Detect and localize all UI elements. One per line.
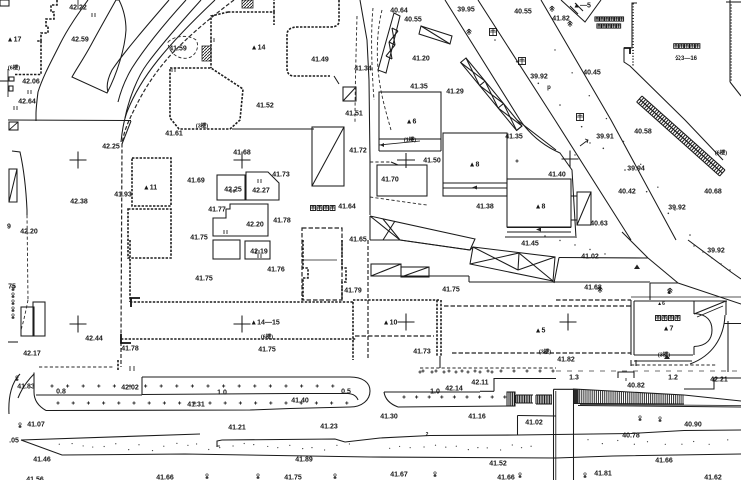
svg-text:1.0: 1.0 bbox=[430, 389, 440, 396]
svg-text:42.14: 42.14 bbox=[445, 386, 463, 393]
svg-text:40.58: 40.58 bbox=[634, 129, 652, 136]
svg-text:▲11: ▲11 bbox=[143, 185, 157, 192]
svg-text:42.22: 42.22 bbox=[69, 5, 87, 12]
svg-text:40.64: 40.64 bbox=[390, 8, 408, 15]
svg-text:41.50: 41.50 bbox=[423, 158, 441, 165]
svg-text:41.40: 41.40 bbox=[548, 172, 566, 179]
svg-text:75: 75 bbox=[8, 284, 16, 291]
svg-text:(6楼): (6楼) bbox=[8, 64, 20, 72]
svg-text:41.77: 41.77 bbox=[208, 207, 226, 214]
svg-text:41.82: 41.82 bbox=[552, 16, 570, 23]
svg-text:41.82: 41.82 bbox=[557, 357, 575, 364]
svg-text:41.16: 41.16 bbox=[468, 414, 486, 421]
svg-text:41.52: 41.52 bbox=[489, 461, 507, 468]
svg-text:▲14: ▲14 bbox=[251, 45, 266, 52]
svg-text:1.3: 1.3 bbox=[569, 375, 579, 382]
svg-text:0.5: 0.5 bbox=[341, 389, 351, 396]
svg-text:39.91: 39.91 bbox=[596, 134, 614, 141]
svg-text:41.51: 41.51 bbox=[345, 111, 363, 118]
svg-text:41.59: 41.59 bbox=[169, 46, 187, 53]
svg-text:40.45: 40.45 bbox=[583, 70, 601, 77]
svg-text:(3楼): (3楼) bbox=[196, 122, 208, 130]
svg-text:1.0: 1.0 bbox=[217, 390, 227, 397]
svg-text:41.07: 41.07 bbox=[27, 422, 45, 429]
svg-text:1.2: 1.2 bbox=[668, 375, 678, 382]
svg-text:41.29: 41.29 bbox=[446, 89, 464, 96]
svg-text:▲—5: ▲—5 bbox=[573, 3, 591, 10]
svg-text:42.25: 42.25 bbox=[224, 187, 242, 194]
svg-text:41.35: 41.35 bbox=[410, 84, 428, 91]
svg-text:41.73: 41.73 bbox=[413, 349, 431, 356]
svg-text:41.75: 41.75 bbox=[190, 235, 208, 242]
svg-text:41.72: 41.72 bbox=[349, 148, 367, 155]
svg-text:41.61: 41.61 bbox=[165, 131, 183, 138]
svg-text:.05: .05 bbox=[9, 438, 19, 445]
svg-text:41.46: 41.46 bbox=[33, 457, 51, 464]
svg-text:41.75: 41.75 bbox=[195, 276, 213, 283]
svg-text:公3—16: 公3—16 bbox=[675, 55, 698, 62]
svg-text:▲8: ▲8 bbox=[535, 204, 546, 211]
svg-text:41.35: 41.35 bbox=[505, 134, 523, 141]
svg-text:0.8: 0.8 bbox=[56, 389, 66, 396]
svg-text:41.31: 41.31 bbox=[187, 402, 205, 409]
svg-text:40.90: 40.90 bbox=[684, 422, 702, 429]
svg-text:39.92: 39.92 bbox=[668, 205, 686, 212]
svg-text:41.45: 41.45 bbox=[521, 241, 539, 248]
svg-text:41.78: 41.78 bbox=[273, 218, 291, 225]
svg-text:42.11: 42.11 bbox=[471, 380, 488, 387]
svg-text:40.63: 40.63 bbox=[590, 221, 608, 228]
svg-text:▲6: ▲6 bbox=[657, 301, 665, 307]
svg-text:41.89: 41.89 bbox=[295, 457, 313, 464]
svg-text:41.75: 41.75 bbox=[258, 347, 276, 354]
svg-text:41.79: 41.79 bbox=[344, 288, 362, 295]
svg-text:42.19: 42.19 bbox=[250, 249, 268, 256]
svg-text:41.81: 41.81 bbox=[594, 471, 612, 478]
svg-text:40.82: 40.82 bbox=[627, 383, 645, 390]
svg-text:(3楼): (3楼) bbox=[539, 348, 551, 356]
svg-text:41.23: 41.23 bbox=[320, 424, 338, 431]
svg-text:41.52: 41.52 bbox=[256, 103, 274, 110]
svg-text:41.49: 41.49 bbox=[311, 57, 329, 64]
svg-text:41.62: 41.62 bbox=[704, 475, 722, 480]
svg-text:41.93: 41.93 bbox=[114, 192, 132, 199]
svg-text:40.78: 40.78 bbox=[622, 433, 640, 440]
svg-text:41.73: 41.73 bbox=[272, 172, 290, 179]
svg-text:41.83: 41.83 bbox=[17, 384, 35, 391]
svg-text:41.68: 41.68 bbox=[584, 285, 602, 292]
svg-text:42.21: 42.21 bbox=[710, 377, 728, 384]
svg-text:41.02: 41.02 bbox=[581, 254, 599, 261]
svg-text:▲10: ▲10 bbox=[383, 320, 398, 327]
svg-text:2: 2 bbox=[426, 432, 429, 438]
svg-text:40.55: 40.55 bbox=[514, 9, 532, 16]
svg-text:41.78: 41.78 bbox=[121, 346, 139, 353]
svg-text:42.64: 42.64 bbox=[18, 99, 36, 106]
svg-text:41.66: 41.66 bbox=[497, 475, 515, 480]
svg-text:41.30: 41.30 bbox=[380, 414, 398, 421]
svg-text:41.75: 41.75 bbox=[284, 475, 302, 480]
svg-text:p: p bbox=[547, 85, 551, 91]
svg-text:41.64: 41.64 bbox=[338, 204, 356, 211]
svg-text:41.70: 41.70 bbox=[381, 177, 399, 184]
svg-text:▲8: ▲8 bbox=[469, 162, 480, 169]
svg-text:42.06: 42.06 bbox=[22, 79, 40, 86]
svg-text:41.38: 41.38 bbox=[476, 204, 494, 211]
svg-text:▲7: ▲7 bbox=[663, 326, 674, 333]
svg-text:39.92: 39.92 bbox=[530, 74, 548, 81]
svg-text:42.02: 42.02 bbox=[121, 385, 139, 392]
svg-text:▲5: ▲5 bbox=[535, 328, 546, 335]
svg-text:40.42: 40.42 bbox=[618, 189, 636, 196]
svg-text:42.25: 42.25 bbox=[102, 144, 120, 151]
svg-text:41.69: 41.69 bbox=[187, 178, 205, 185]
svg-text:(3楼): (3楼) bbox=[658, 351, 670, 359]
svg-text:42.27: 42.27 bbox=[252, 188, 270, 195]
svg-text:40.55: 40.55 bbox=[404, 17, 422, 24]
svg-text:42.20: 42.20 bbox=[20, 229, 38, 236]
svg-text:39.95: 39.95 bbox=[457, 7, 475, 14]
svg-text:39.94: 39.94 bbox=[627, 166, 645, 173]
svg-text:42.44: 42.44 bbox=[85, 336, 103, 343]
svg-text:▲17: ▲17 bbox=[7, 37, 22, 44]
svg-text:41.21: 41.21 bbox=[228, 425, 246, 432]
svg-text:40.68: 40.68 bbox=[704, 189, 722, 196]
svg-text:42.17: 42.17 bbox=[23, 351, 41, 358]
svg-text:42.38: 42.38 bbox=[70, 199, 88, 206]
svg-text:41.67: 41.67 bbox=[390, 472, 408, 479]
svg-text:39.92: 39.92 bbox=[707, 248, 725, 255]
svg-text:(6楼): (6楼) bbox=[715, 149, 727, 157]
svg-text:41.65: 41.65 bbox=[349, 237, 367, 244]
svg-text:41.56: 41.56 bbox=[26, 477, 44, 480]
svg-text:(6楼): (6楼) bbox=[261, 333, 273, 341]
svg-text:41.68: 41.68 bbox=[233, 150, 251, 157]
svg-text:42.20: 42.20 bbox=[246, 222, 264, 229]
svg-text:9: 9 bbox=[7, 224, 11, 231]
svg-text:41.66: 41.66 bbox=[156, 475, 174, 480]
svg-text:41.34: 41.34 bbox=[354, 66, 372, 73]
svg-text:41.75: 41.75 bbox=[442, 287, 460, 294]
svg-text:▲14—15: ▲14—15 bbox=[250, 320, 280, 327]
svg-text:41.66: 41.66 bbox=[655, 458, 673, 465]
svg-text:41.20: 41.20 bbox=[412, 56, 430, 63]
svg-text:▲6: ▲6 bbox=[406, 119, 417, 126]
svg-text:41.76: 41.76 bbox=[267, 267, 285, 274]
svg-text:42.59: 42.59 bbox=[71, 37, 89, 44]
svg-text:41.02: 41.02 bbox=[525, 420, 543, 427]
svg-text:(1楼): (1楼) bbox=[404, 136, 416, 144]
svg-text:41.40: 41.40 bbox=[291, 398, 309, 405]
